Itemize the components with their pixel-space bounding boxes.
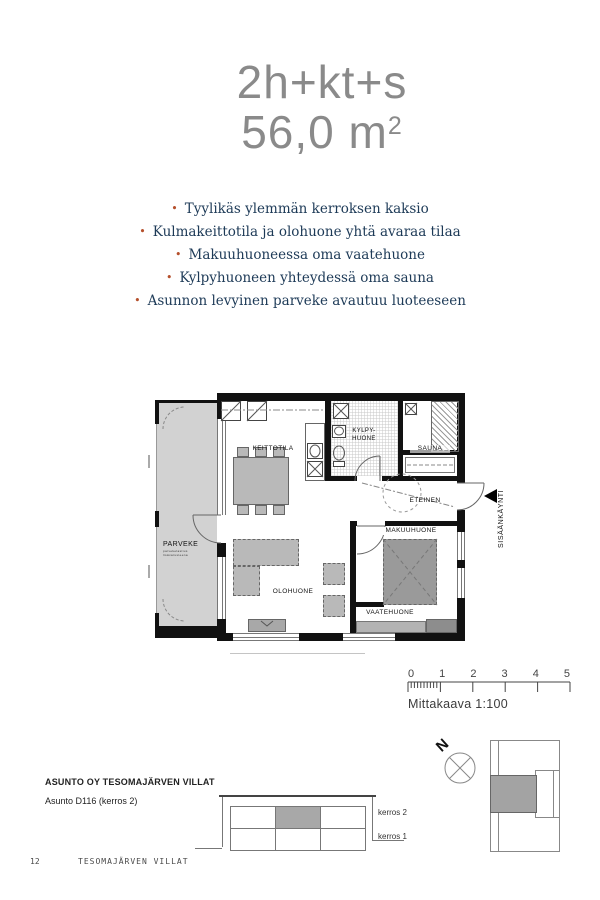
floor-plan: PARVEKE parvekelasitus lisävarusteena KE… (155, 393, 465, 648)
apartment-title: 2h+kt+s 56,0 m2 (22, 58, 600, 157)
apartment-id: Asunto D116 (kerros 2) (45, 796, 137, 806)
floor-label-1: kerros 1 (378, 832, 407, 841)
dimension-line (230, 653, 365, 654)
elevation-floors (230, 806, 365, 850)
apartment-area: 56,0 m2 (22, 108, 600, 158)
dimension-mark (148, 455, 150, 468)
room-label-kylpyhuone: KYLPY- HUONE (345, 428, 383, 443)
balcony-note: lisävarusteena (163, 554, 213, 558)
feature-list: Tyylikäs ylemmän kerroksen kaksio Kulmak… (0, 198, 600, 313)
feature-item: Makuuhuoneessa oma vaatehuone (0, 244, 600, 267)
area-superscript: 2 (388, 112, 403, 140)
feature-item: Tyylikäs ylemmän kerroksen kaksio (0, 198, 600, 221)
plan-symbol-overlay (155, 393, 495, 653)
apartment-type: 2h+kt+s (22, 58, 600, 108)
north-label: N (433, 736, 452, 756)
room-label-parveke: PARVEKE parvekelasitus lisävarusteena (163, 541, 213, 557)
footer-title: TESOMAJÄRVEN VILLAT (78, 857, 189, 866)
elevation-edge (222, 797, 223, 847)
ground-line (195, 848, 222, 849)
floor-label-2: kerros 2 (378, 808, 407, 817)
room-label-keittotila: KEITTOTILA (243, 445, 303, 453)
dimension-mark (148, 565, 150, 578)
site-line (553, 770, 554, 818)
roof-line (219, 795, 376, 797)
unit-cell (320, 806, 366, 829)
scale-numbers: 0 1 2 3 4 5 (406, 668, 572, 680)
feature-item: Asunnon levyinen parveke avautuu luotees… (0, 290, 600, 313)
room-label-sauna: SAUNA (410, 445, 450, 453)
unit-cell (275, 828, 321, 851)
project-name: ASUNTO OY TESOMAJÄRVEN VILLAT (45, 777, 215, 787)
brochure-page: 2h+kt+s 56,0 m2 Tyylikäs ylemmän kerroks… (0, 0, 600, 900)
site-key-plan (488, 738, 564, 856)
unit-cell (230, 828, 276, 851)
unit-cell (320, 828, 366, 851)
feature-item: Kylpyhuoneen yhteydessä oma sauna (0, 267, 600, 290)
compass-icon: N (426, 730, 490, 790)
room-label-vaatehuone: VAATEHUONE (358, 609, 422, 617)
building-elevation: kerros 2 kerros 1 (195, 790, 455, 862)
room-label-makuuhuone: MAKUUHUONE (380, 527, 442, 535)
entrance-label: SISÄÄNKÄYNTI (498, 452, 505, 548)
elevation-edge (372, 797, 373, 840)
scale-ruler (406, 680, 572, 694)
site-wing (535, 770, 560, 818)
entrance-arrow-icon (484, 489, 497, 503)
page-number: 12 (30, 857, 40, 866)
highlighted-unit-cell (275, 806, 321, 829)
room-label-olohuone: OLOHUONE (263, 588, 323, 596)
highlighted-building (490, 775, 537, 813)
feature-item: Kulmakeittotila ja olohuone yhtä avaraa … (0, 221, 600, 244)
room-label-eteinen: ETEINEN (403, 497, 447, 505)
unit-cell (230, 806, 276, 829)
scale-bar: 0 1 2 3 4 5 (406, 668, 572, 699)
scale-caption: Mittakaava 1:100 (408, 697, 508, 711)
